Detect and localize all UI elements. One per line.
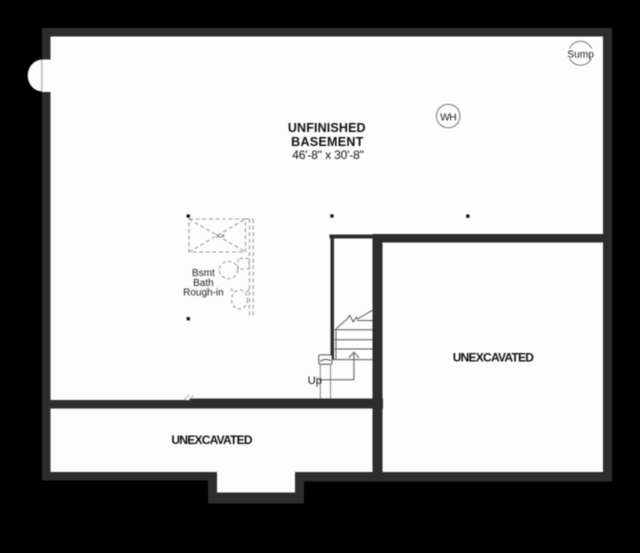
svg-text:UNEXCAVATED: UNEXCAVATED <box>171 433 253 447</box>
svg-text:Sump: Sump <box>567 49 594 60</box>
svg-text:WH: WH <box>440 112 456 123</box>
svg-text:BASEMENT: BASEMENT <box>291 135 364 149</box>
svg-text:Rough-in: Rough-in <box>183 288 224 299</box>
svg-text:Up: Up <box>308 375 322 387</box>
svg-text:UNFINISHED: UNFINISHED <box>288 121 366 135</box>
svg-text:UNEXCAVATED: UNEXCAVATED <box>453 351 535 365</box>
svg-text:46'-8" x 30'-8": 46'-8" x 30'-8" <box>292 148 364 162</box>
